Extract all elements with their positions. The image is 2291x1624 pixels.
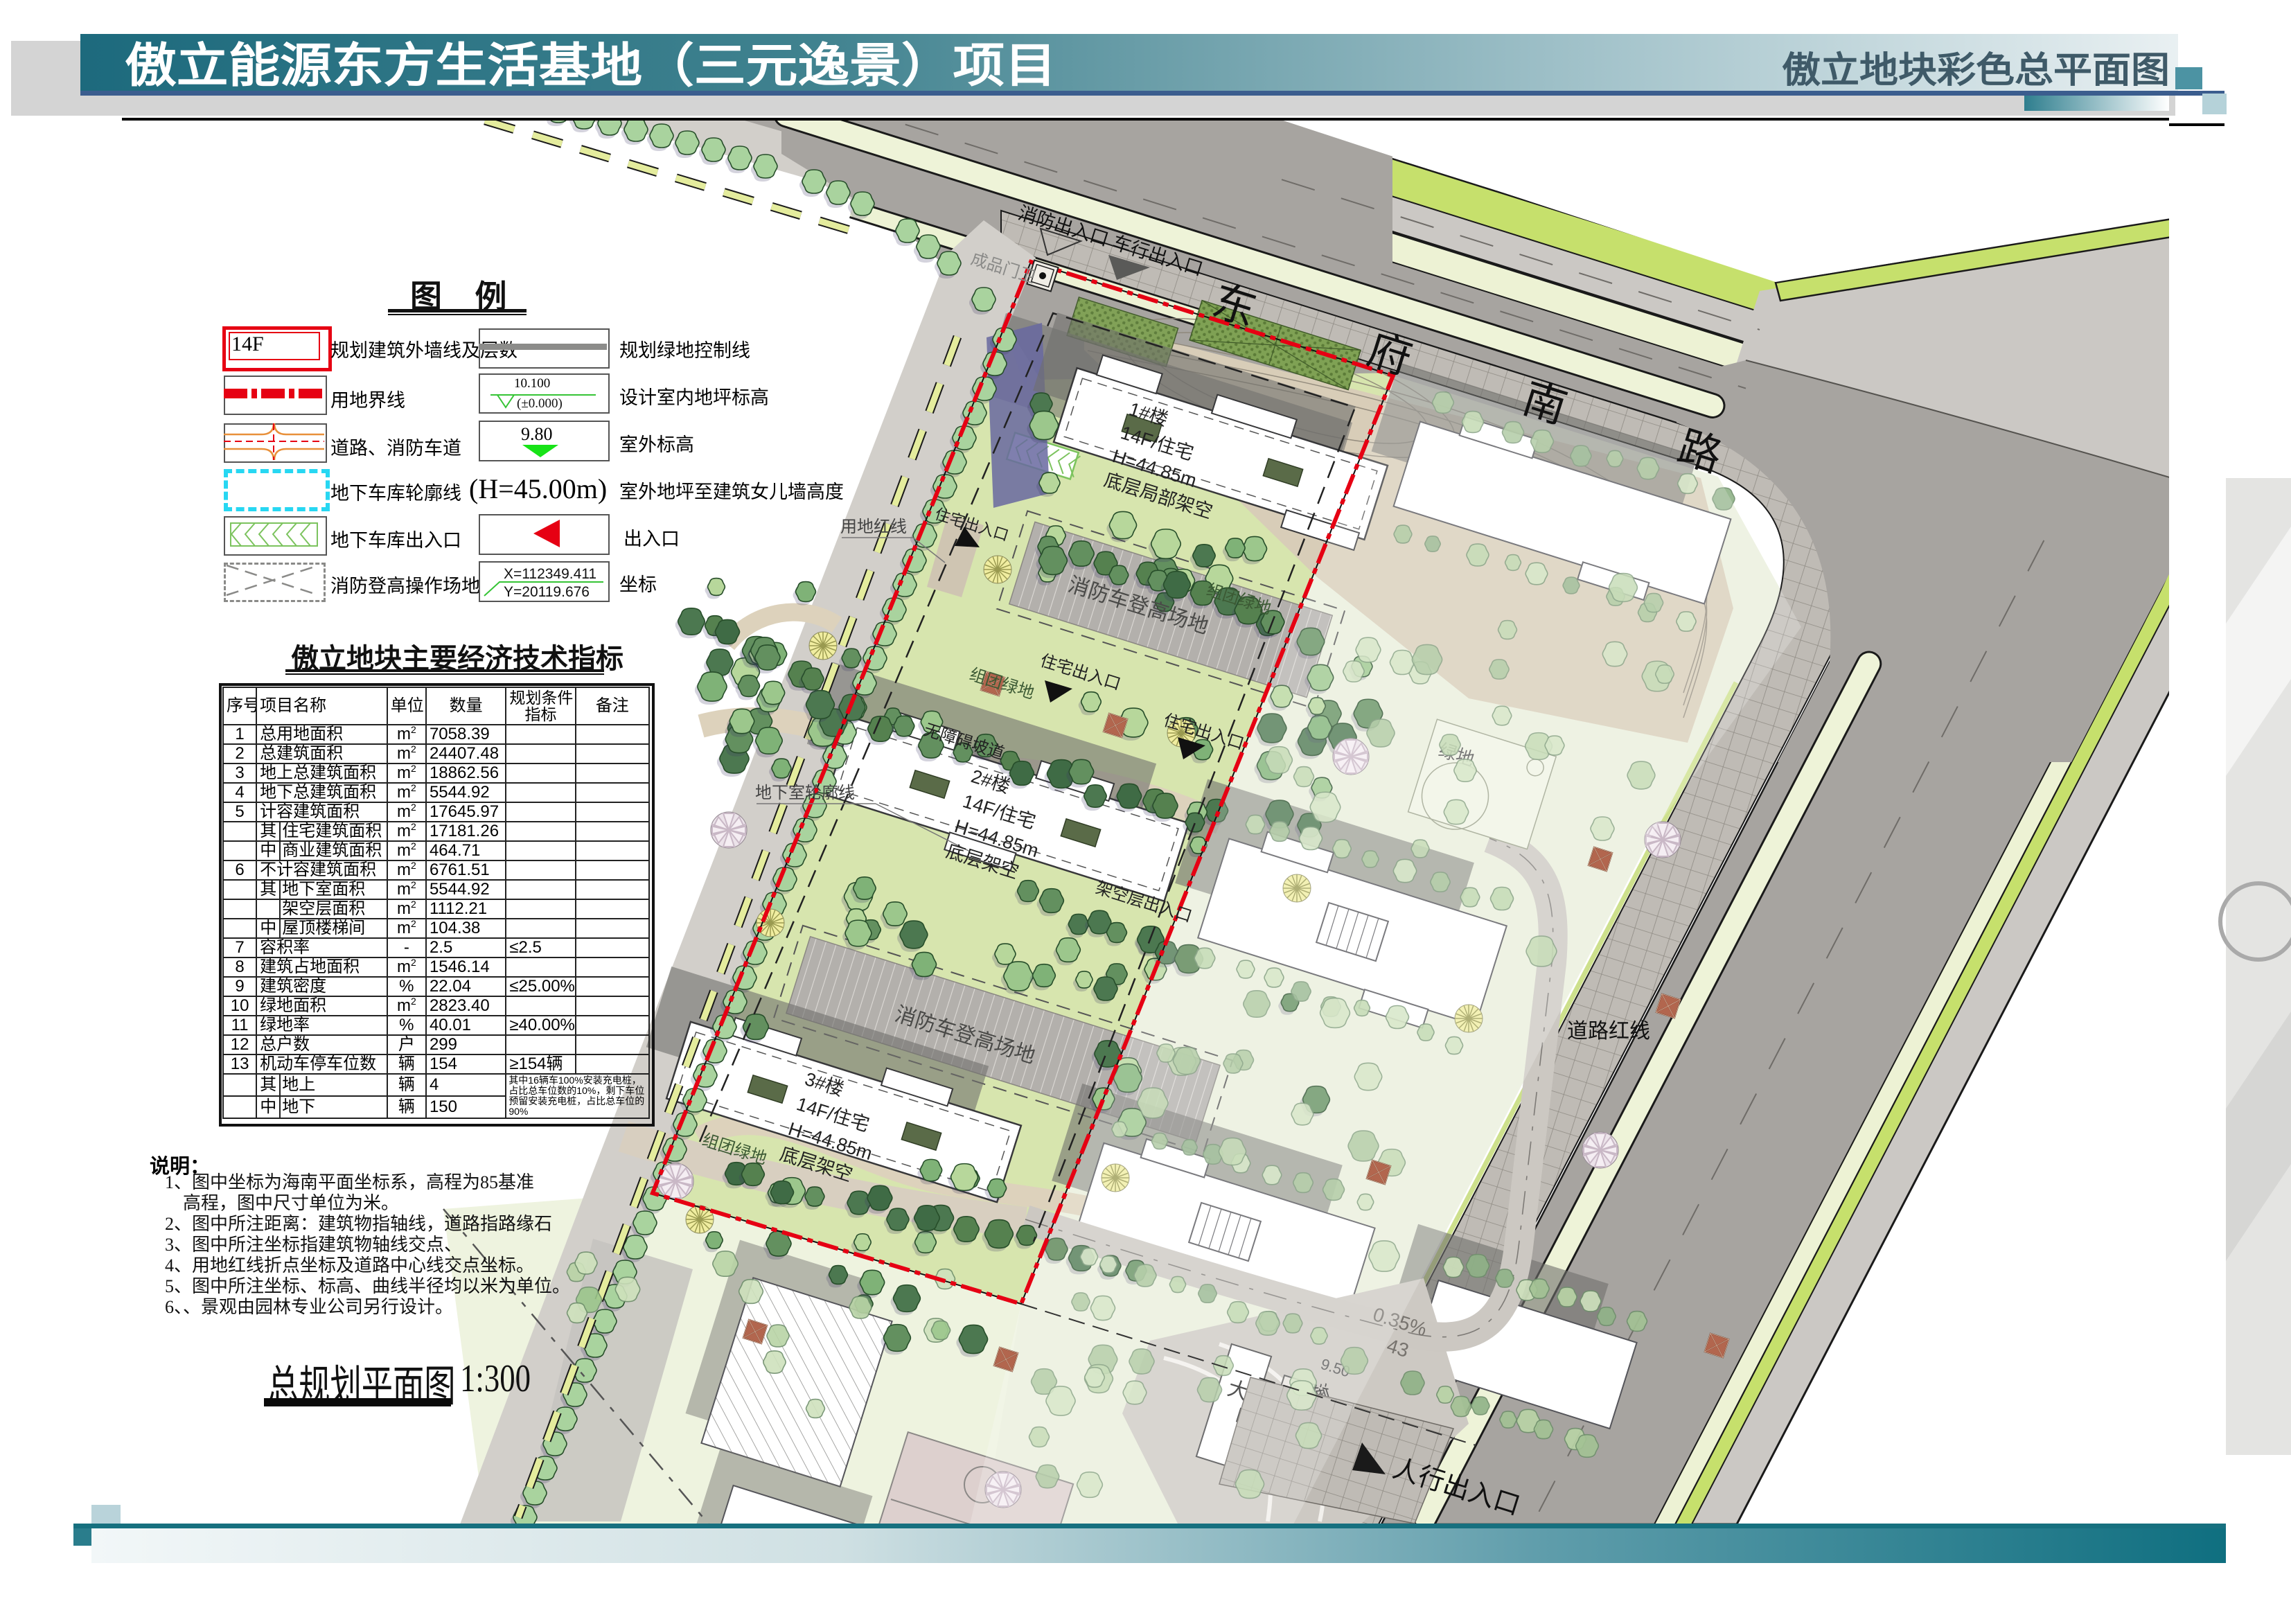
svg-text:傲立能源东方生活基地（三元逸景）项目: 傲立能源东方生活基地（三元逸景）项目: [125, 39, 1056, 92]
svg-text:用地红线: 用地红线: [840, 518, 907, 536]
svg-text:Y=20119.676: Y=20119.676: [504, 584, 590, 599]
svg-text:道路红线: 道路红线: [1567, 1020, 1650, 1043]
svg-text:(±0.000): (±0.000): [517, 396, 563, 410]
svg-text:傲立地块彩色总平面图: 傲立地块彩色总平面图: [1782, 51, 2170, 91]
svg-text:X=112349.411: X=112349.411: [504, 566, 596, 582]
svg-text:地下室轮廓线: 地下室轮廓线: [755, 784, 855, 802]
